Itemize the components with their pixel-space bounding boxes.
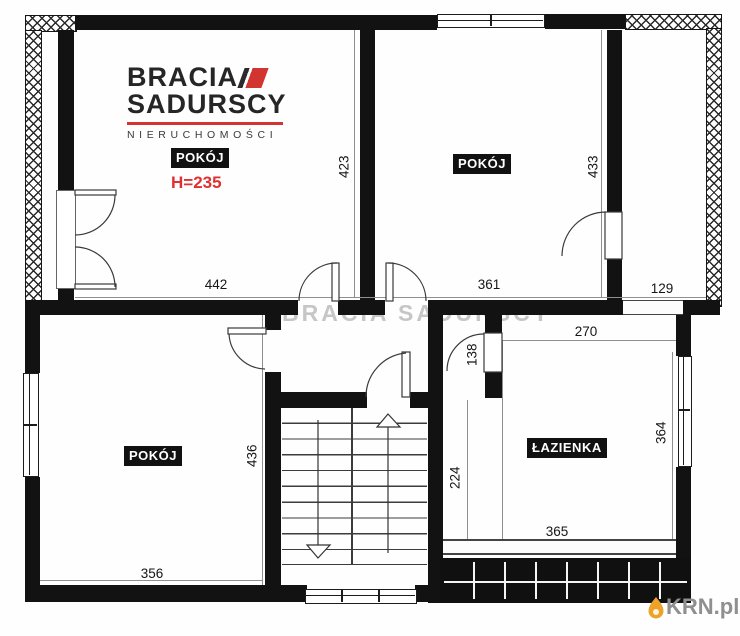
dimension-line: [502, 340, 503, 539]
room-label-lazienka: ŁAZIENKA: [527, 438, 607, 458]
dimension-label: 129: [636, 282, 688, 296]
door-leaf: [484, 333, 502, 372]
window: [678, 356, 692, 467]
door-leaf: [605, 212, 622, 259]
krn-logo-text: KRN.pl: [666, 596, 739, 618]
balcony-threshold: [623, 300, 683, 315]
logo-mark-icon: [237, 68, 268, 88]
ceiling-height-note: H=235: [171, 173, 222, 193]
door-leaf: [386, 263, 393, 301]
dimension-line: [672, 352, 673, 539]
window-mullion: [490, 15, 492, 26]
wall-segment: [485, 315, 502, 333]
wall-segment: [410, 392, 428, 408]
floor-plan: BRACIA SADURSCY: [0, 0, 740, 636]
dimension-label: 436: [245, 436, 259, 476]
krn-logo: KRN.pl: [648, 596, 739, 620]
dimension-line: [354, 30, 355, 297]
dimension-label: 423: [337, 147, 351, 187]
window: [305, 589, 417, 604]
agency-name-line2: SADURSCY: [127, 91, 287, 118]
room-label-pokoj-1: POKÓJ: [171, 148, 229, 168]
wall-segment: [25, 477, 40, 602]
balcony-hatch-wall: [25, 30, 42, 302]
wall-segment: [58, 30, 74, 192]
wall-segment: [428, 300, 623, 315]
door-leaf: [228, 328, 266, 334]
wall-segment: [75, 15, 437, 30]
dimension-label: 270: [560, 325, 612, 339]
agency-name-line3: NIERUCHOMOŚCI: [127, 129, 287, 141]
door-swing-arc: [229, 334, 265, 369]
wall-segment: [415, 585, 443, 602]
wall-segment: [360, 30, 375, 302]
wall-segment: [281, 392, 367, 408]
dimension-label: 365: [531, 525, 583, 539]
wall-segment: [281, 585, 307, 602]
logo-rule: [127, 122, 283, 125]
door-swing-arc: [75, 195, 115, 235]
window-mullion: [341, 590, 343, 602]
door-swing-arc: [562, 212, 606, 256]
door-swing-arc: [366, 353, 406, 397]
dimension-line: [601, 30, 602, 297]
door-leaf: [75, 284, 116, 289]
dimension-line: [262, 315, 263, 585]
wall-segment: [676, 315, 691, 356]
door-swing-arc: [388, 263, 426, 301]
window-mullion: [306, 595, 415, 596]
wall-segment: [607, 30, 622, 213]
wall-segment: [545, 14, 625, 29]
light-wall: [443, 539, 676, 555]
wall-segment: [676, 467, 691, 558]
door-leaf: [332, 263, 339, 301]
dimension-label: 138: [465, 335, 479, 375]
dimension-label: 364: [654, 413, 668, 453]
door-opening: [56, 190, 76, 289]
dimension-label: 356: [126, 567, 178, 581]
wall-segment: [485, 372, 502, 398]
door-leaf: [75, 190, 116, 195]
window-mullion: [679, 409, 690, 411]
balcony-hatch-wall: [706, 28, 722, 307]
dimension-line: [75, 297, 706, 298]
dimension-label: 224: [448, 458, 462, 498]
window: [437, 14, 545, 28]
dimension-label: 361: [463, 278, 515, 292]
dimension-label: 442: [190, 278, 242, 292]
agency-logo: BRACIA SADURSCY NIERUCHOMOŚCI: [127, 64, 287, 141]
door-leaf: [402, 352, 410, 397]
wall-segment: [338, 300, 385, 315]
agency-name-line1: BRACIA: [127, 64, 238, 91]
wall-segment: [607, 258, 622, 302]
wall-segment: [265, 315, 281, 330]
room-label-pokoj-2: POKÓJ: [453, 154, 511, 174]
window-mullion: [378, 590, 380, 602]
wall-segment: [25, 300, 298, 315]
door-swing-arc: [299, 263, 337, 301]
krn-flame-icon: [648, 596, 664, 620]
dimension-label: 433: [586, 147, 600, 187]
dimension-line: [502, 340, 676, 341]
window: [23, 373, 39, 477]
wall-segment: [25, 585, 281, 602]
window-mullion: [24, 424, 37, 426]
staircase-steps: [282, 408, 427, 565]
room-label-pokoj-3: POKÓJ: [124, 446, 182, 466]
window-mullion: [683, 357, 684, 465]
wall-segment: [25, 315, 40, 373]
door-swing-arc: [75, 247, 115, 287]
wall-segment: [265, 372, 281, 602]
dimension-line: [467, 400, 468, 539]
wall-segment: [683, 300, 720, 315]
staircase-divider: [351, 408, 353, 565]
